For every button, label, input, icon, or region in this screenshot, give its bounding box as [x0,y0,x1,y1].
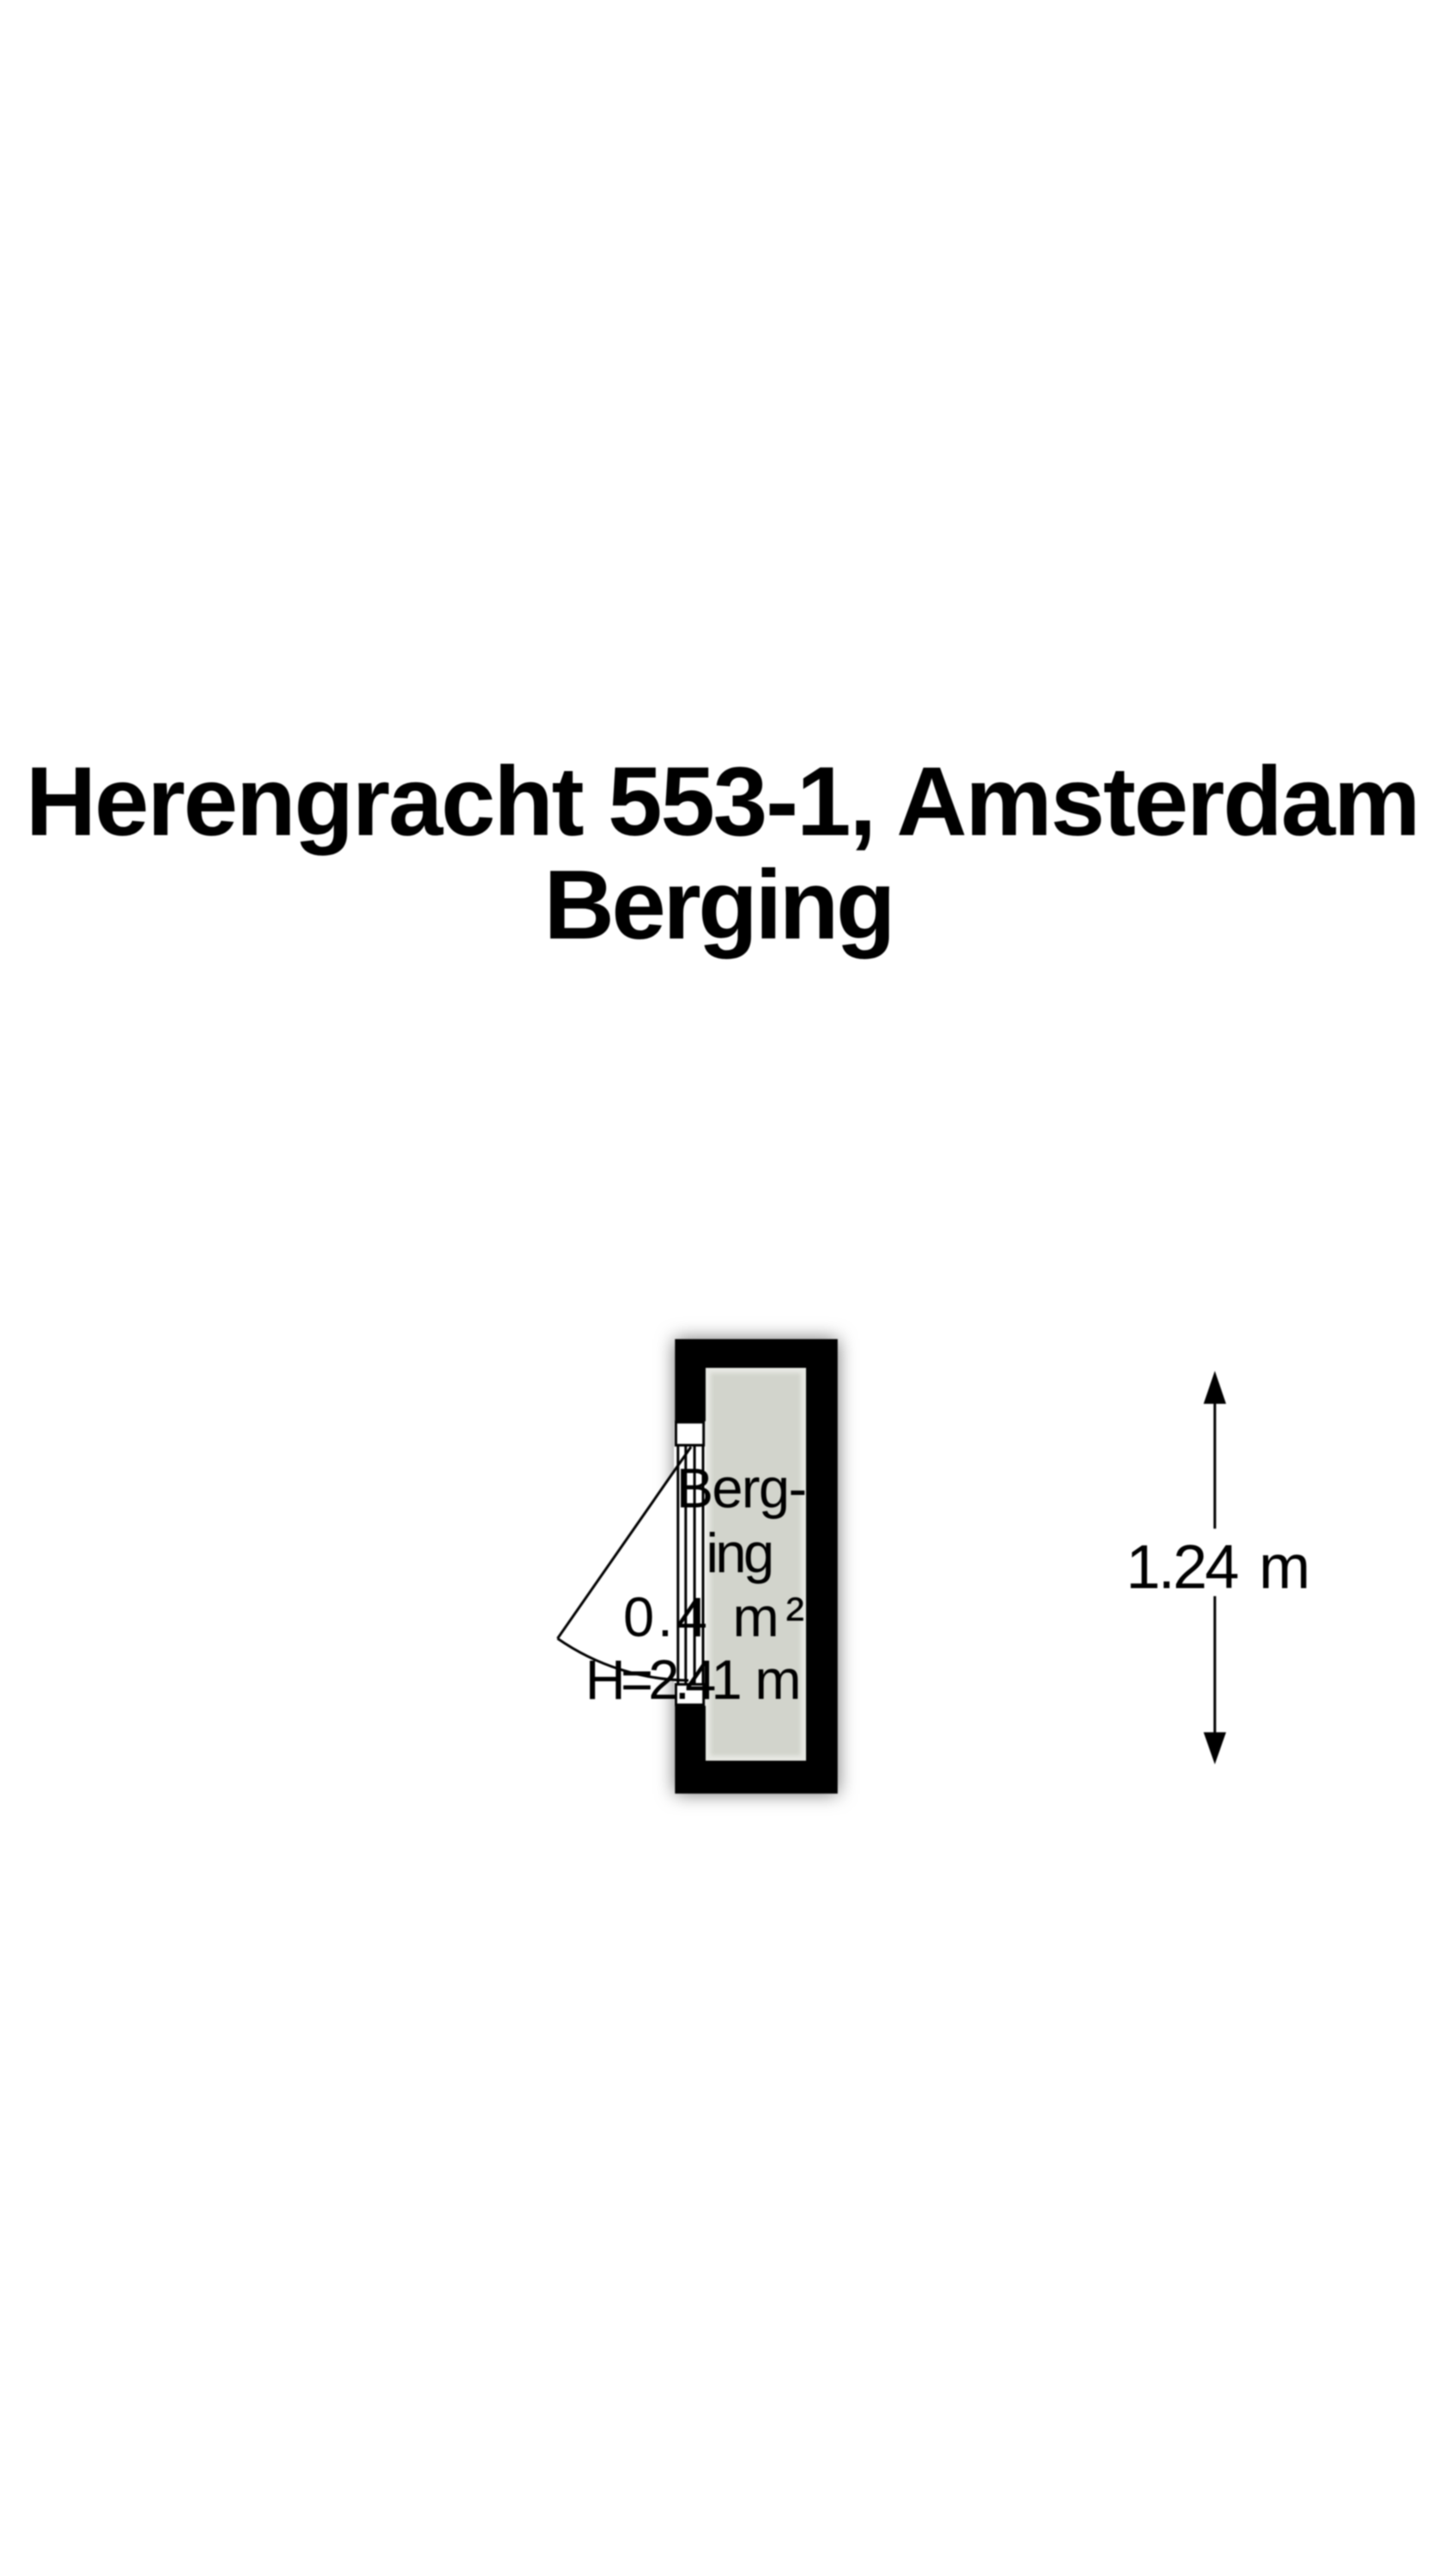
svg-text:Berg-: Berg- [676,1456,807,1519]
svg-text:1.24: 1.24 [1126,1534,1240,1602]
svg-text:0.4: 0.4 [623,1586,707,1649]
svg-text:H=2.41: H=2.41 [585,1649,743,1711]
svg-text:Herengracht 553-1, Amsterdam: Herengracht 553-1, Amsterdam [26,748,1421,857]
svg-text:m: m [755,1649,801,1711]
svg-text:ing: ing [706,1522,774,1584]
svg-text:m²: m² [733,1586,805,1649]
svg-text:Berging: Berging [544,851,896,960]
svg-text:m: m [1259,1534,1311,1602]
